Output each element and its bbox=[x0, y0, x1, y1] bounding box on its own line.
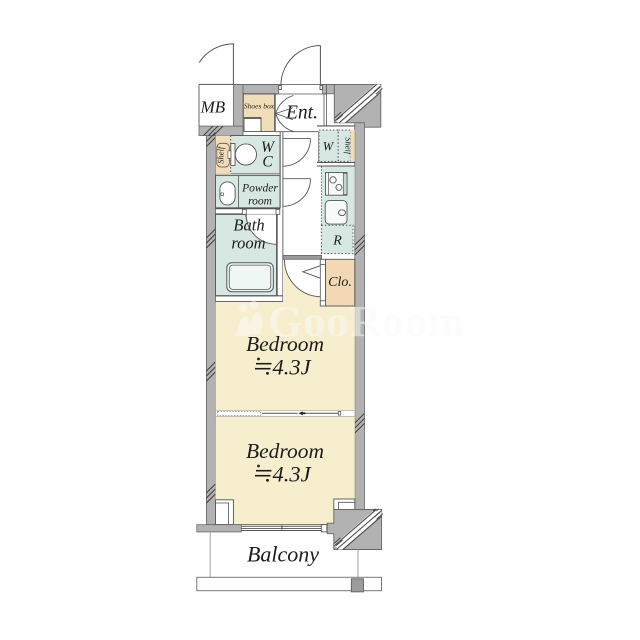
svg-text:GooRoom: GooRoom bbox=[268, 297, 466, 346]
svg-text:Ent.: Ent. bbox=[285, 103, 318, 124]
svg-text:room: room bbox=[248, 196, 272, 208]
svg-text:MB: MB bbox=[200, 98, 226, 117]
svg-text:C: C bbox=[262, 154, 273, 171]
svg-text:Shoes box: Shoes box bbox=[244, 102, 275, 111]
svg-text:Bath: Bath bbox=[233, 216, 264, 235]
svg-text:Powder: Powder bbox=[241, 183, 278, 195]
svg-text:room: room bbox=[231, 234, 265, 253]
svg-text:Clo.: Clo. bbox=[328, 275, 352, 290]
svg-text:Bedroom: Bedroom bbox=[246, 439, 324, 463]
svg-text:4.3J: 4.3J bbox=[273, 355, 312, 380]
svg-text:W: W bbox=[323, 140, 335, 154]
svg-text:R: R bbox=[332, 234, 342, 249]
svg-text:4.3J: 4.3J bbox=[273, 462, 312, 487]
svg-text:Balcony: Balcony bbox=[247, 542, 319, 567]
svg-text:Shelf: Shelf bbox=[215, 145, 225, 164]
